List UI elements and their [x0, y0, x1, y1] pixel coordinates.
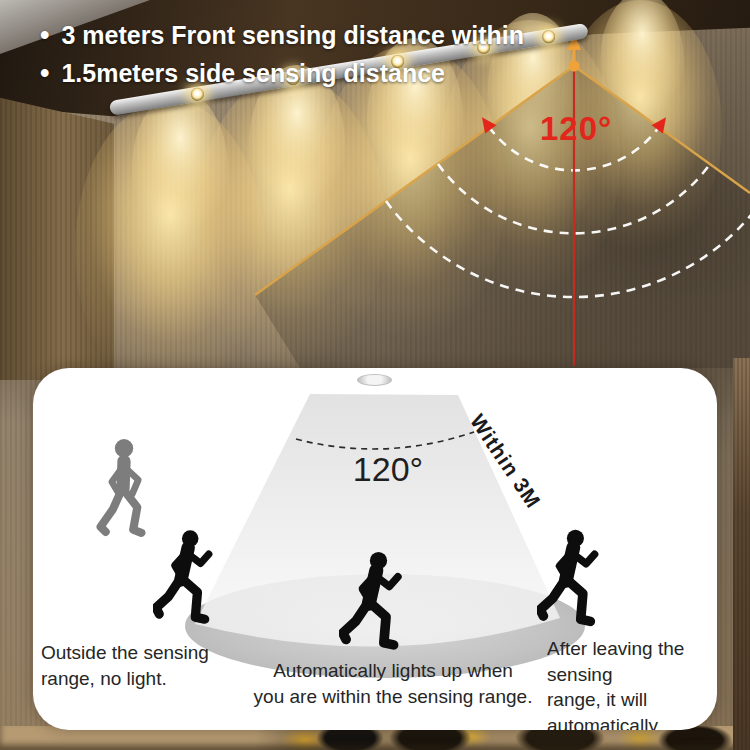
walking-person-icon	[88, 438, 158, 540]
caption-lights-up: Automatically lights up when you are wit…	[228, 658, 558, 709]
side-wall	[0, 92, 114, 380]
running-person-right-icon	[537, 524, 601, 642]
caption-line: After leaving the sensing	[547, 636, 717, 687]
wall-angle-label: 120°	[540, 110, 650, 148]
led-light-5	[541, 29, 556, 44]
caption-outside-range: Outside the sensing range, no light.	[41, 640, 209, 691]
bullet-icon: •	[40, 58, 49, 89]
bullet-icon: •	[40, 20, 49, 51]
panel-angle-label: 120°	[333, 450, 443, 489]
caption-line: range, it will automatically	[547, 687, 717, 730]
running-person-center-icon	[339, 552, 405, 660]
header-bullets: • 3 meters Front sensing distance within…	[40, 20, 524, 96]
caption-turn-off: After leaving the sensing range, it will…	[547, 636, 717, 730]
caption-line: range, no light.	[41, 666, 209, 692]
product-infographic: 120° • 3 meters Front sensing distance w…	[0, 0, 750, 750]
sensor-light-icon	[357, 374, 392, 386]
right-wood-strip	[733, 358, 750, 750]
caption-line: Automatically lights up when	[228, 658, 558, 684]
running-person-left-icon	[153, 528, 215, 636]
caption-line: you are within the sensing range.	[228, 684, 558, 710]
caption-line: Outside the sensing	[41, 640, 209, 666]
bullet-text-1: 3 meters Front sensing distance within	[61, 21, 524, 50]
bullet-row-1: • 3 meters Front sensing distance within	[40, 20, 524, 51]
info-panel: 120° Within 3M	[33, 368, 717, 730]
bullet-row-2: • 1.5meters side sensing distance	[40, 58, 524, 89]
bullet-text-2: 1.5meters side sensing distance	[61, 59, 445, 88]
